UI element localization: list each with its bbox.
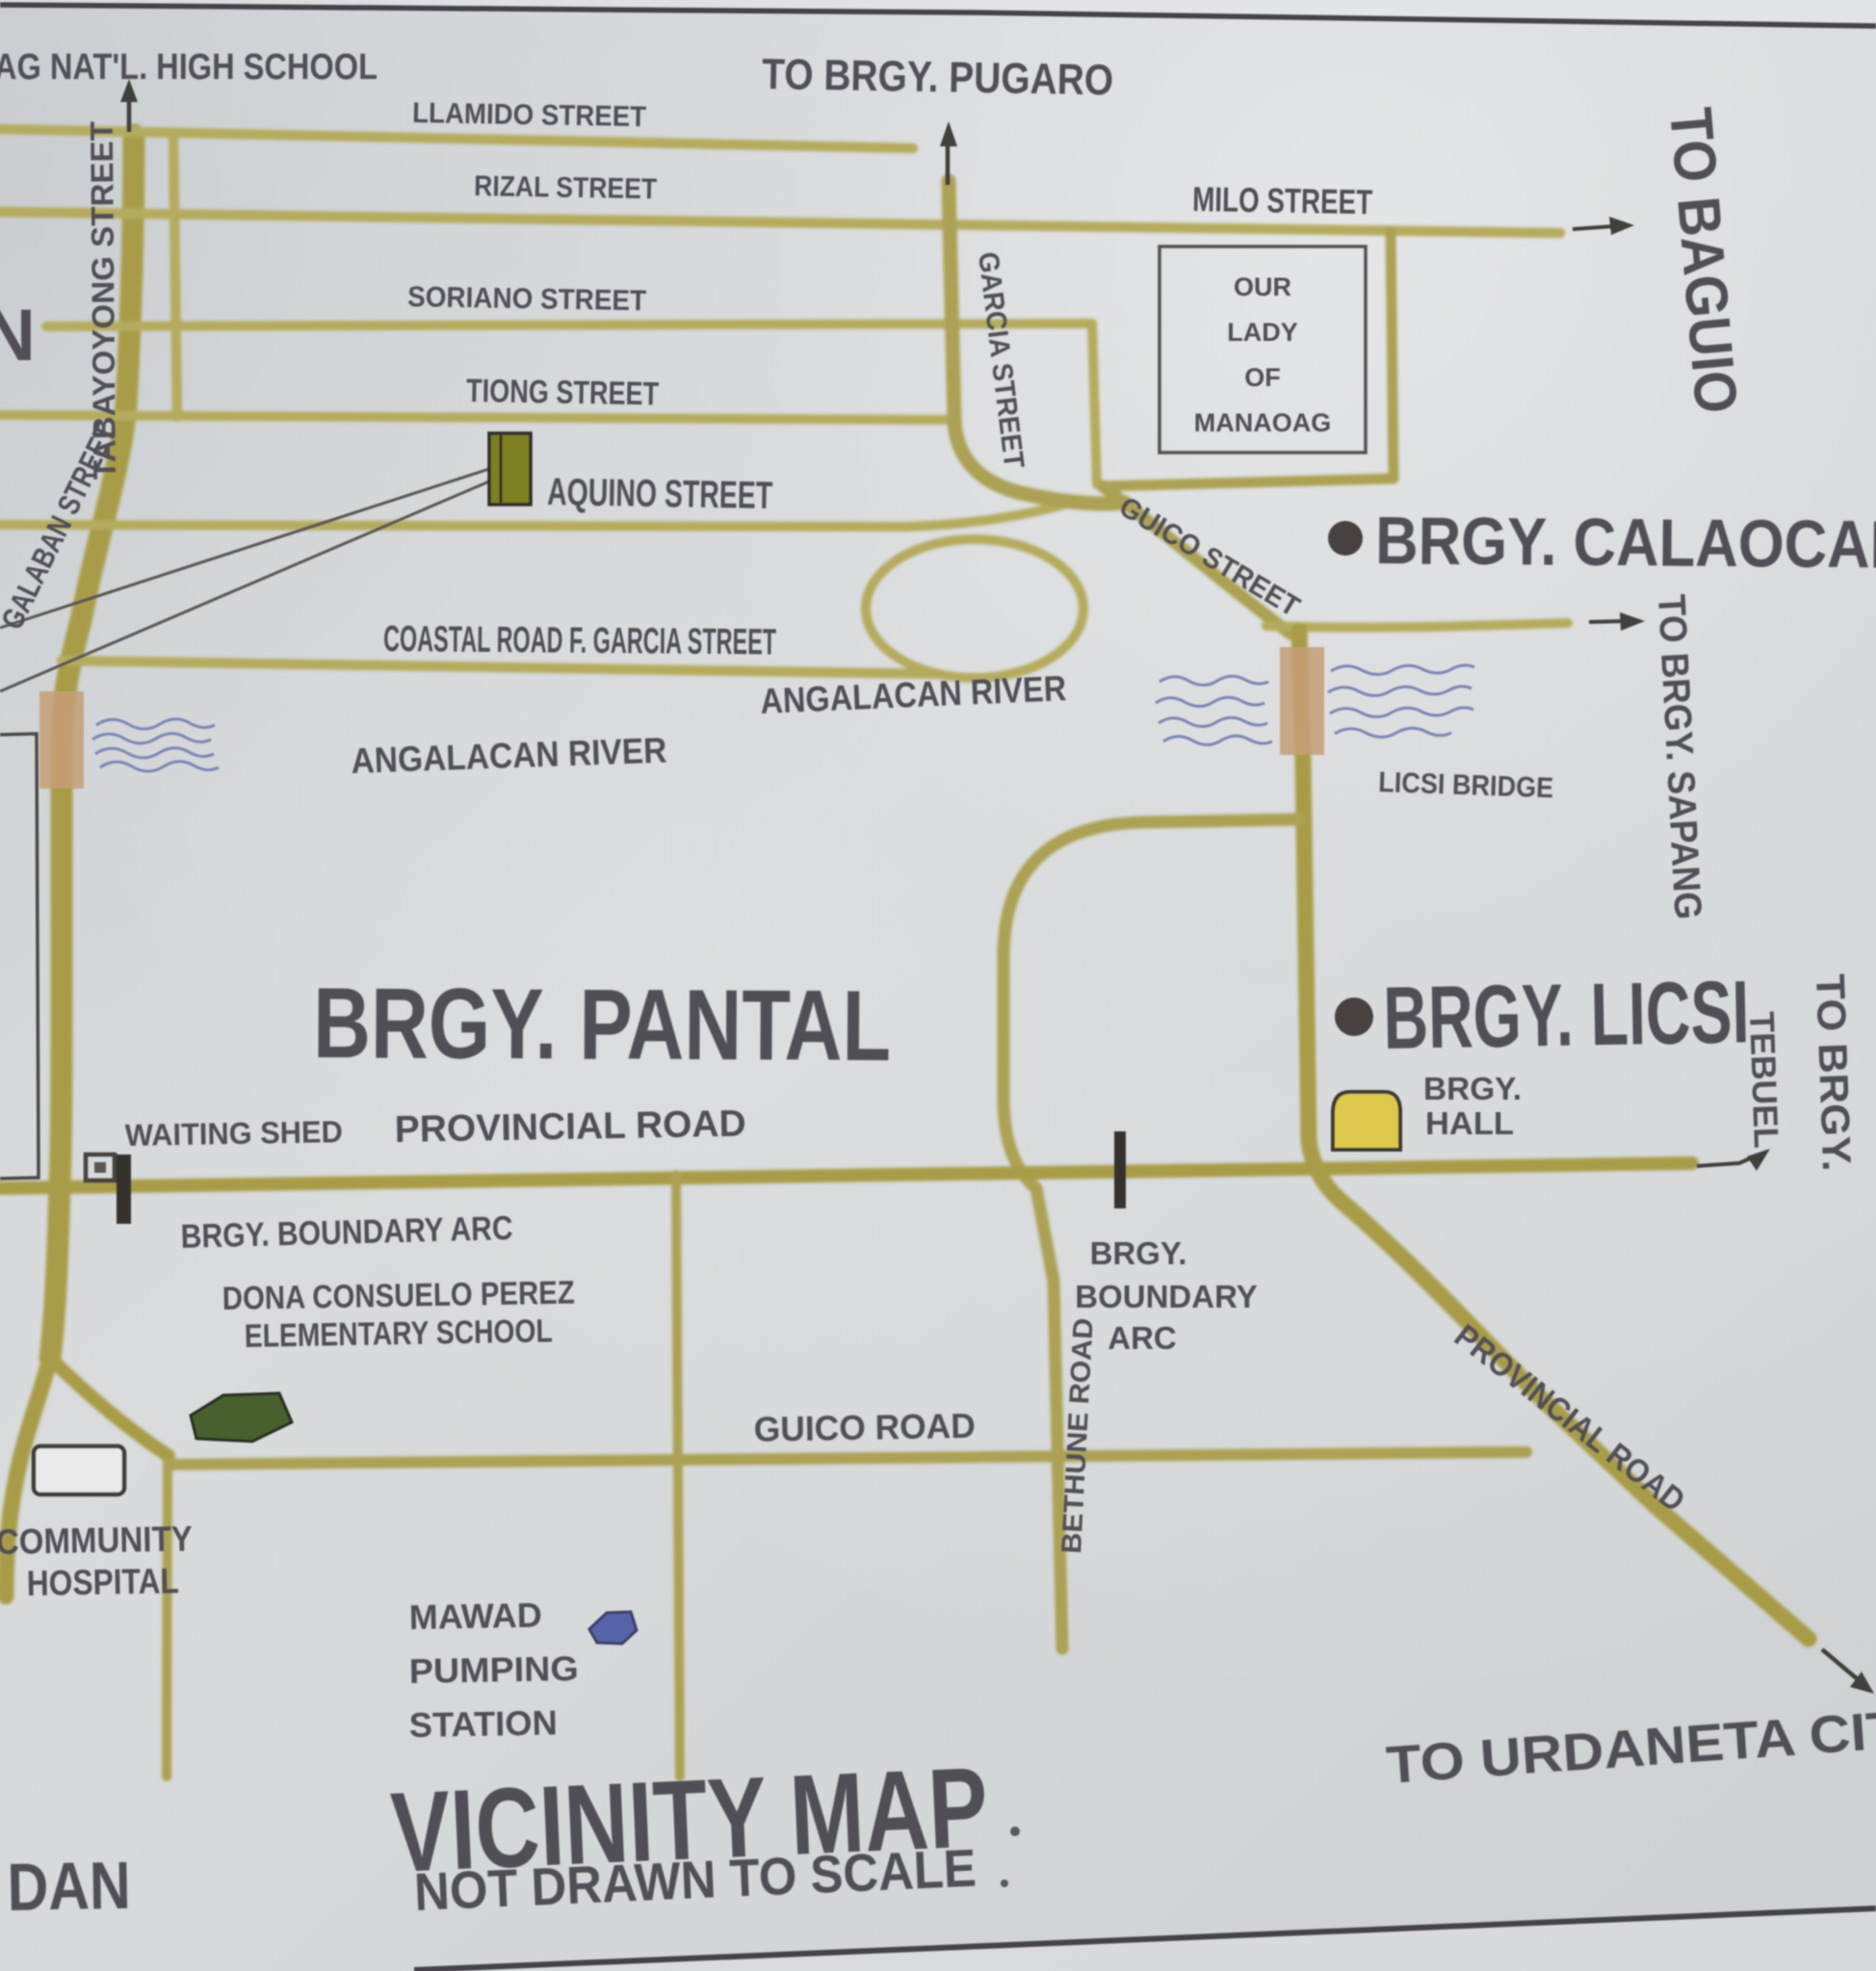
svg-text:TEBUEL: TEBUEL [1742, 1011, 1786, 1149]
svg-text:LICSI BRIDGE: LICSI BRIDGE [1378, 766, 1554, 804]
svg-text:BRGY.: BRGY. [1090, 1235, 1187, 1271]
svg-text:STATION: STATION [408, 1702, 558, 1745]
svg-text:PUMPING: PUMPING [408, 1648, 579, 1691]
svg-text:BRGY.: BRGY. [1423, 1071, 1522, 1106]
svg-text:TO BRGY. PUGARO: TO BRGY. PUGARO [762, 49, 1114, 104]
svg-text:ARC: ARC [1107, 1320, 1177, 1356]
svg-text:WAITING SHED: WAITING SHED [124, 1114, 343, 1153]
svg-text:HOSPITAL: HOSPITAL [26, 1561, 179, 1603]
svg-text:RIZAL STREET: RIZAL STREET [474, 170, 658, 205]
svg-text:COASTAL ROAD F. GARCIA STREET: COASTAL ROAD F. GARCIA STREET [383, 619, 776, 663]
svg-text:LLAMIDO STREET: LLAMIDO STREET [412, 97, 647, 133]
svg-text:LADY: LADY [1227, 318, 1298, 347]
svg-text:PROVINCIAL ROAD: PROVINCIAL ROAD [394, 1103, 746, 1151]
svg-text:BRGY. LICSI: BRGY. LICSI [1383, 963, 1751, 1068]
svg-text:ELEMENTARY SCHOOL: ELEMENTARY SCHOOL [244, 1312, 553, 1355]
svg-text:TIONG STREET: TIONG STREET [466, 373, 660, 412]
svg-text:BRGY. PANTAL: BRGY. PANTAL [313, 968, 892, 1082]
svg-text:SORIANO STREET: SORIANO STREET [407, 281, 647, 317]
svg-text:DAN: DAN [7, 1848, 131, 1925]
svg-text:OUR: OUR [1234, 272, 1291, 301]
svg-text:MILO STREET: MILO STREET [1192, 179, 1373, 221]
svg-text:MAWAD: MAWAD [408, 1595, 542, 1637]
svg-text:BOUNDARY: BOUNDARY [1075, 1279, 1257, 1314]
svg-text:GUICO ROAD: GUICO ROAD [753, 1406, 976, 1449]
svg-text:N: N [0, 295, 36, 376]
svg-text:DONA CONSUELO PEREZ: DONA CONSUELO PEREZ [221, 1275, 575, 1317]
svg-text:MANAOAG: MANAOAG [1194, 408, 1332, 437]
svg-text:HALL: HALL [1425, 1105, 1514, 1141]
svg-text:AG NAT'L. HIGH SCHOOL: AG NAT'L. HIGH SCHOOL [0, 47, 378, 88]
svg-text:AQUINO STREET: AQUINO STREET [547, 471, 773, 517]
svg-text:OF: OF [1244, 363, 1281, 392]
svg-text:BRGY. CALAOCAN: BRGY. CALAOCAN [1375, 503, 1876, 583]
svg-text:COMMUNITY: COMMUNITY [0, 1518, 193, 1562]
svg-text:TO BRGY.: TO BRGY. [1808, 973, 1860, 1173]
